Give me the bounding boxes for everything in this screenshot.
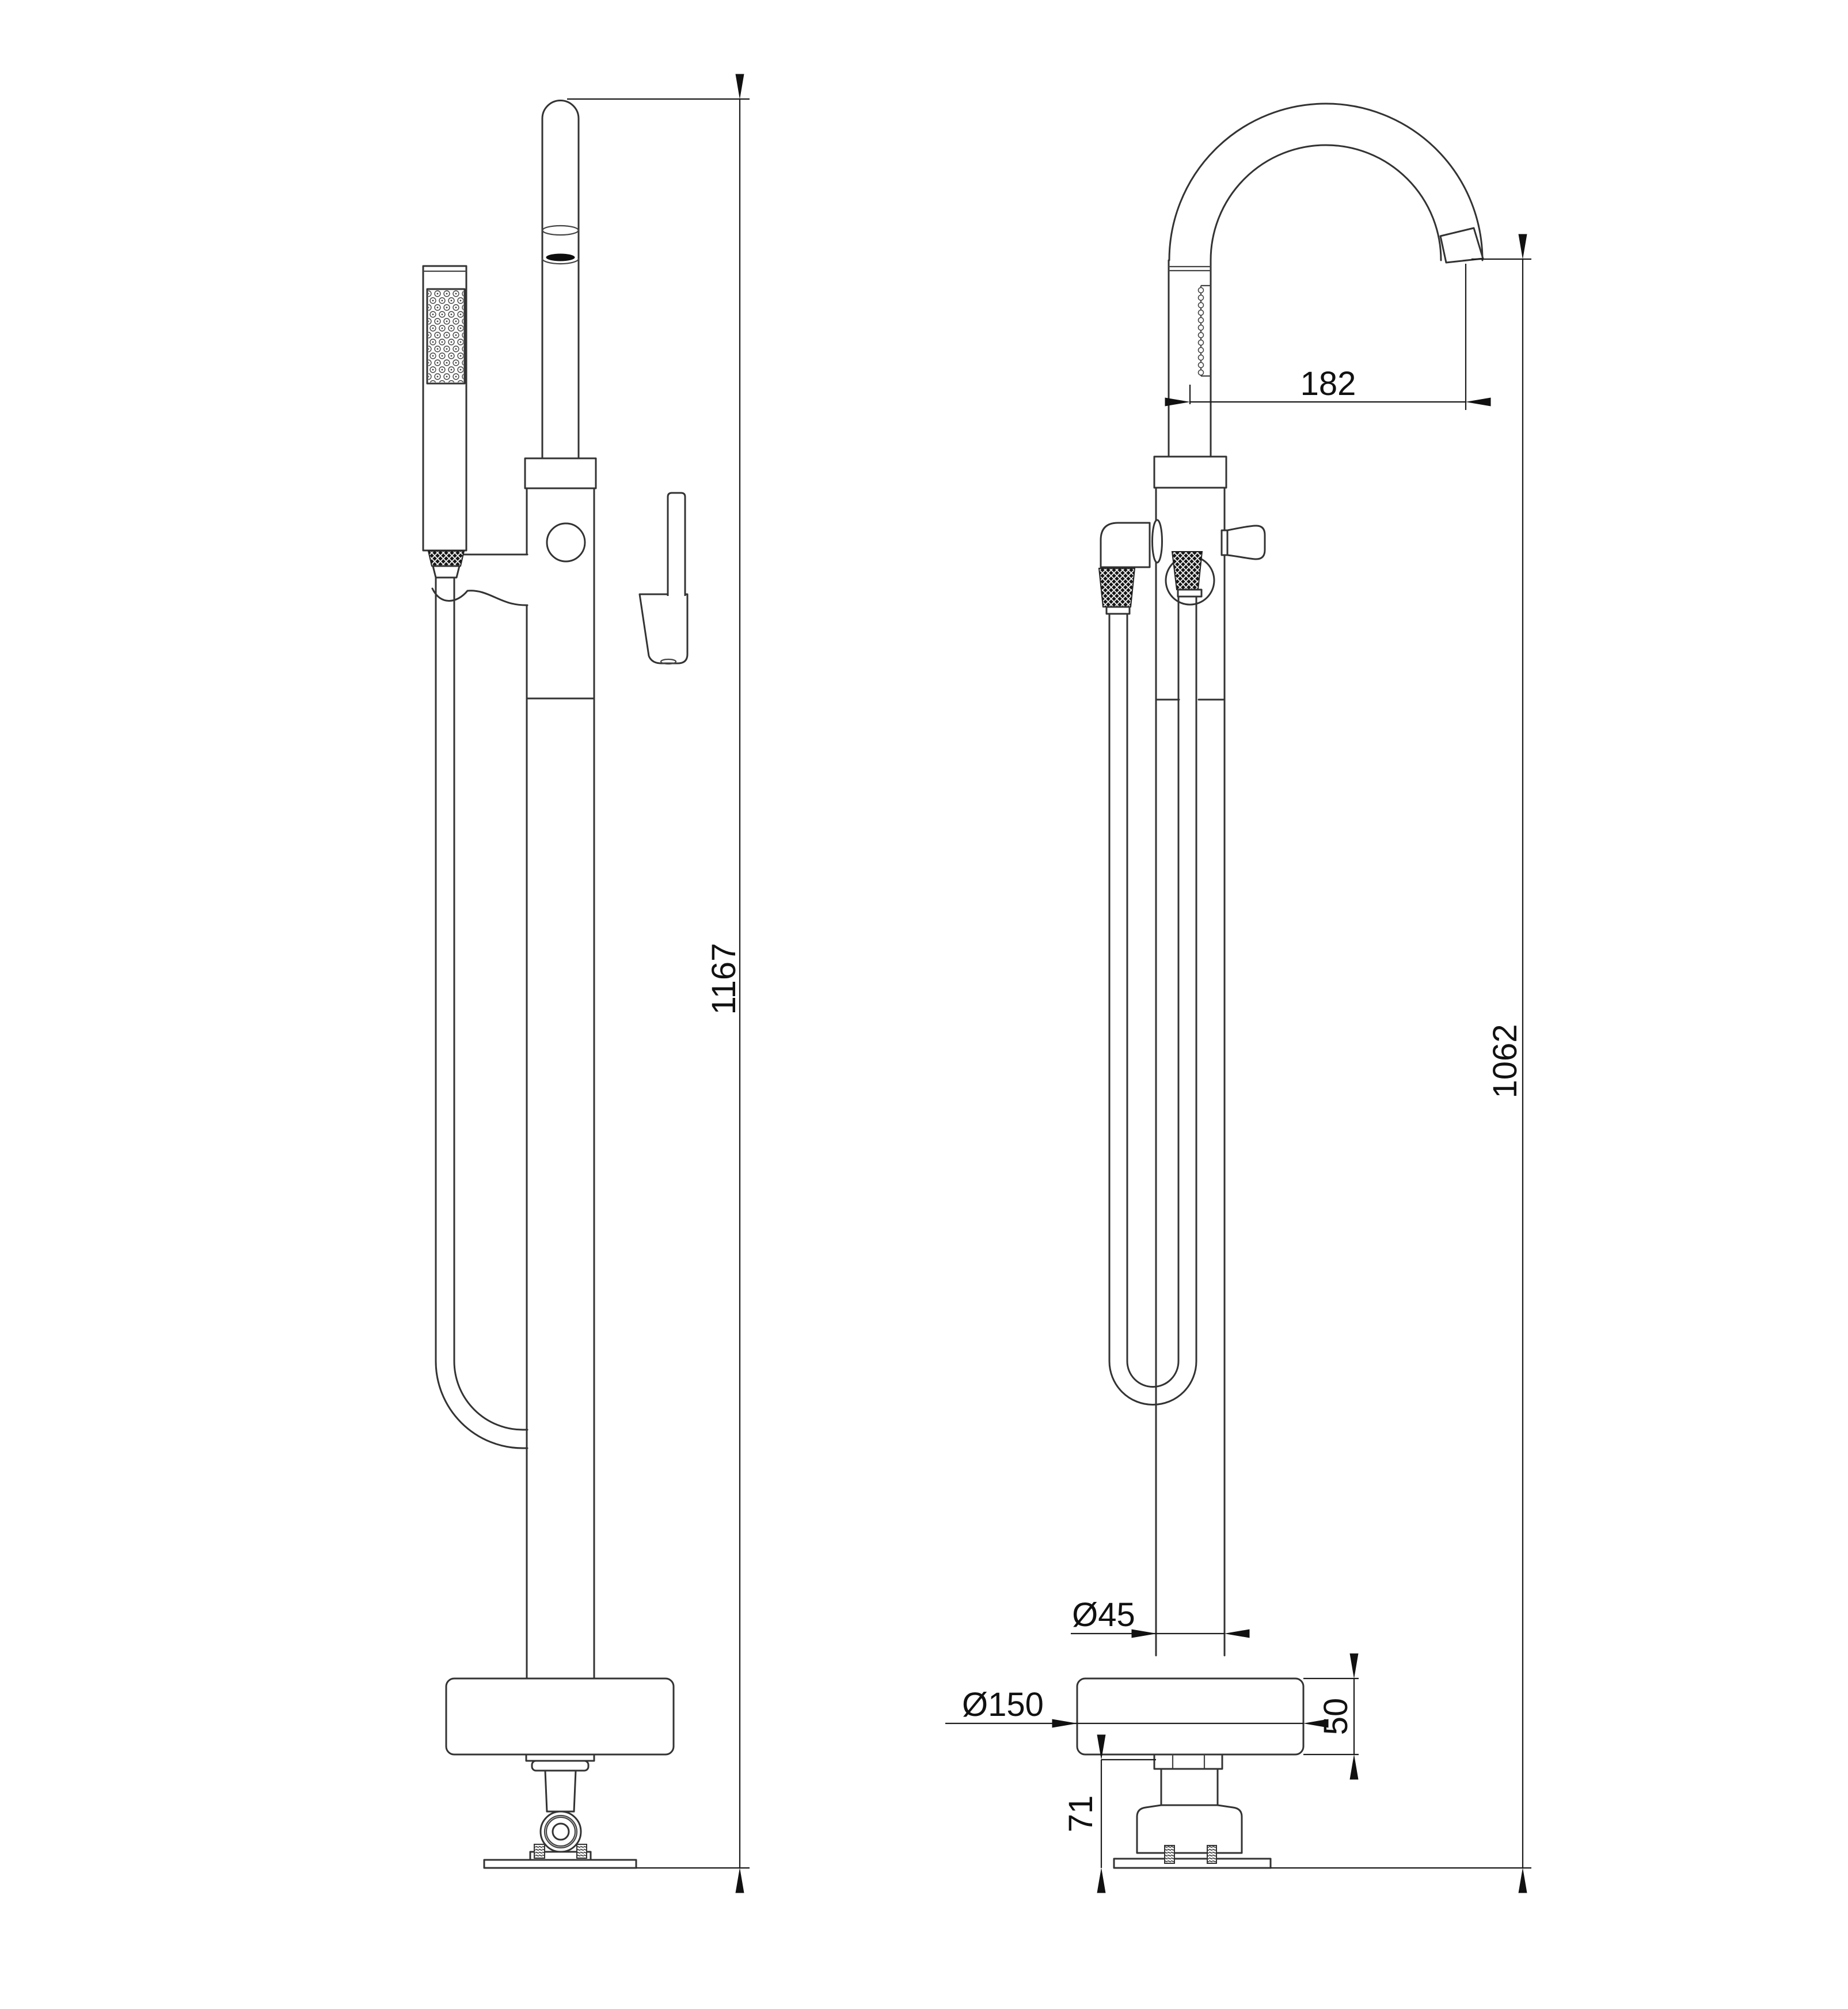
- base-cylinder: [446, 1678, 674, 1754]
- mount-stud-right: [577, 1844, 587, 1858]
- floor-fitting-block: [1137, 1805, 1242, 1853]
- outlet-elbow: [1101, 523, 1150, 567]
- elbow-flange-disc: [1153, 520, 1162, 563]
- dimension-label-71: 71: [1062, 1795, 1100, 1833]
- dimension-label-1167: 1167: [705, 943, 743, 1015]
- hose-nut-knurled: [428, 551, 464, 566]
- base-cylinder: [1077, 1678, 1303, 1754]
- spray-nozzles: [428, 290, 463, 382]
- floor-plate: [484, 1860, 636, 1868]
- shower-hose-collar: [1178, 590, 1201, 597]
- fitting-stud-right: [1207, 1845, 1216, 1863]
- dimension-label-182: 182: [1301, 365, 1356, 402]
- dimension-label-dia45: Ø45: [1072, 1596, 1135, 1634]
- floor-neck: [545, 1771, 576, 1811]
- base-under-step: [526, 1754, 594, 1761]
- lever-bell: [1227, 526, 1265, 559]
- fitting-stud-left: [1165, 1845, 1174, 1863]
- base-under-nut: [532, 1761, 588, 1771]
- technical-drawing-canvas: 1167: [0, 0, 1848, 2009]
- floor-neck: [1161, 1769, 1218, 1805]
- aerator-outlet: [546, 254, 575, 261]
- base-under-nut: [1154, 1754, 1222, 1769]
- elbow-knurled-nut: [1099, 568, 1135, 607]
- lever-stick: [668, 493, 685, 596]
- dimension-label-dia150: Ø150: [962, 1686, 1044, 1723]
- floor-plate: [1114, 1859, 1271, 1868]
- hose-cone: [433, 566, 459, 578]
- dimension-label-50: 50: [1317, 1698, 1355, 1735]
- elbow-hose-collar: [1106, 607, 1130, 614]
- mount-stud-left: [534, 1844, 545, 1858]
- column-collar: [525, 458, 596, 488]
- column-collar: [1154, 457, 1226, 488]
- shower-knurled-nut: [1172, 552, 1202, 590]
- sheet-background: [0, 0, 1848, 2009]
- drawing-sheet: 1167: [0, 0, 1848, 2009]
- dimension-label-1062: 1062: [1486, 1024, 1524, 1098]
- spout-riser: [542, 101, 579, 459]
